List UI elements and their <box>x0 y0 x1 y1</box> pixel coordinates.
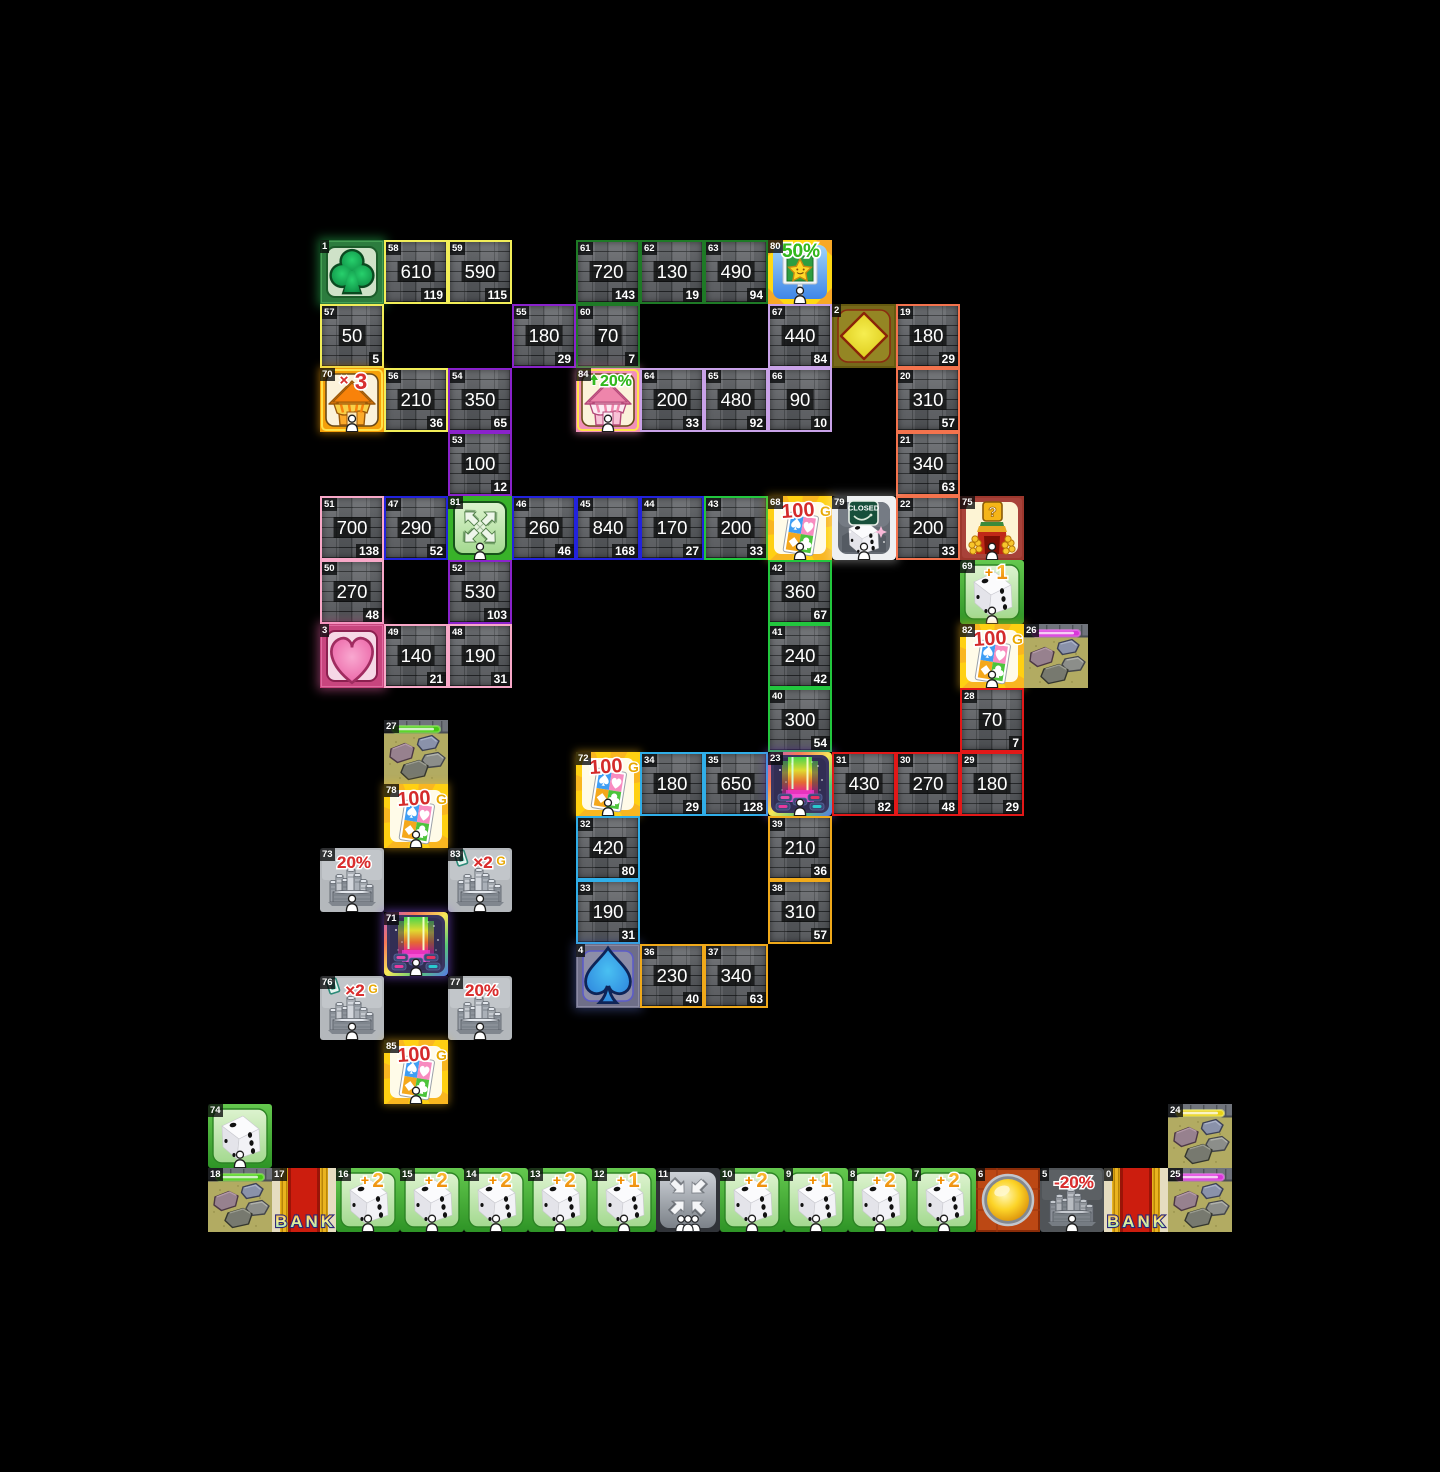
svg-text:100: 100 <box>397 1043 432 1067</box>
svg-text:100: 100 <box>589 755 624 779</box>
svg-text:2: 2 <box>372 1170 383 1192</box>
svg-text:100: 100 <box>973 627 1008 651</box>
svg-text:+: + <box>489 1172 497 1188</box>
svg-text:20%: 20% <box>600 373 632 390</box>
svg-text:?: ? <box>988 504 997 520</box>
svg-text:100: 100 <box>781 499 816 523</box>
svg-text:+: + <box>745 1172 753 1188</box>
svg-text:G: G <box>628 759 639 775</box>
svg-text:G: G <box>368 982 377 996</box>
svg-text:CLOSED: CLOSED <box>848 504 880 513</box>
svg-text:-20%: -20% <box>1054 1173 1094 1192</box>
svg-text:+: + <box>361 1172 369 1188</box>
svg-text:2: 2 <box>756 1170 767 1192</box>
svg-text:×: × <box>340 372 349 389</box>
svg-text:2: 2 <box>948 1170 959 1192</box>
svg-text:2: 2 <box>564 1170 575 1192</box>
svg-text:G: G <box>1012 631 1023 647</box>
svg-text:100: 100 <box>397 787 432 811</box>
svg-text:20%: 20% <box>465 981 499 1000</box>
svg-text:1: 1 <box>996 562 1007 584</box>
svg-text:+: + <box>873 1172 881 1188</box>
svg-text:G: G <box>436 791 447 807</box>
svg-text:50%: 50% <box>782 241 820 262</box>
svg-text:G: G <box>496 854 505 868</box>
svg-text:3: 3 <box>355 369 367 394</box>
svg-text:+: + <box>985 564 993 580</box>
svg-text:G: G <box>436 1047 447 1063</box>
svg-text:2: 2 <box>884 1170 895 1192</box>
svg-text:20%: 20% <box>337 853 371 872</box>
svg-text:2: 2 <box>436 1170 447 1192</box>
svg-text:1: 1 <box>820 1170 831 1192</box>
svg-text:+: + <box>553 1172 561 1188</box>
svg-text:1: 1 <box>628 1170 639 1192</box>
svg-text:+: + <box>809 1172 817 1188</box>
svg-text:+: + <box>937 1172 945 1188</box>
svg-text:G: G <box>820 503 831 519</box>
svg-text:2: 2 <box>500 1170 511 1192</box>
svg-text:+: + <box>617 1172 625 1188</box>
svg-text:×2: ×2 <box>473 853 492 872</box>
svg-text:×2: ×2 <box>345 981 364 1000</box>
svg-text:+: + <box>425 1172 433 1188</box>
